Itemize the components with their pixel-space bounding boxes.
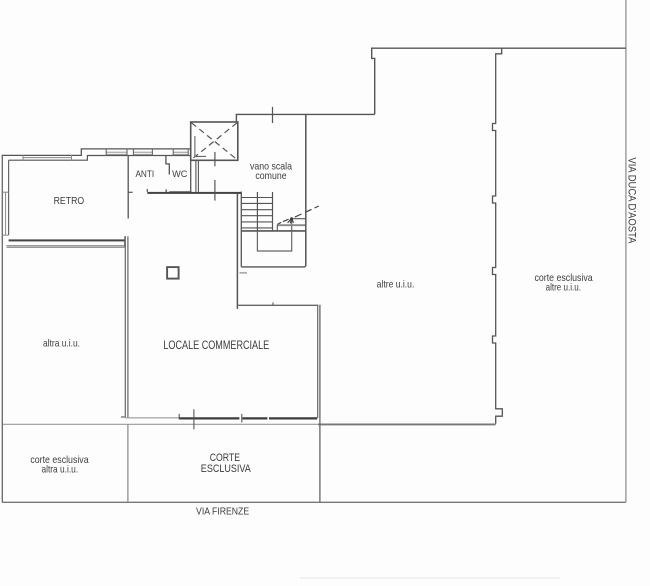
svg-text:VIA FIRENZE: VIA FIRENZE <box>196 506 249 517</box>
svg-text:ANTI: ANTI <box>135 169 154 180</box>
svg-text:WC: WC <box>172 169 187 180</box>
svg-text:VIA DUCA D'AOSTA: VIA DUCA D'AOSTA <box>626 157 638 244</box>
svg-text:ESCLUSIVA: ESCLUSIVA <box>201 463 252 475</box>
svg-text:altre u.i.u.: altre u.i.u. <box>546 283 581 294</box>
svg-text:RETRO: RETRO <box>54 196 85 207</box>
svg-text:LOCALE COMMERCIALE: LOCALE COMMERCIALE <box>163 339 269 352</box>
svg-text:altra u.i.u.: altra u.i.u. <box>43 339 80 350</box>
svg-text:altra u.i.u.: altra u.i.u. <box>41 465 78 476</box>
svg-text:altre u.i.u.: altre u.i.u. <box>377 280 415 291</box>
svg-text:comune: comune <box>255 171 286 182</box>
